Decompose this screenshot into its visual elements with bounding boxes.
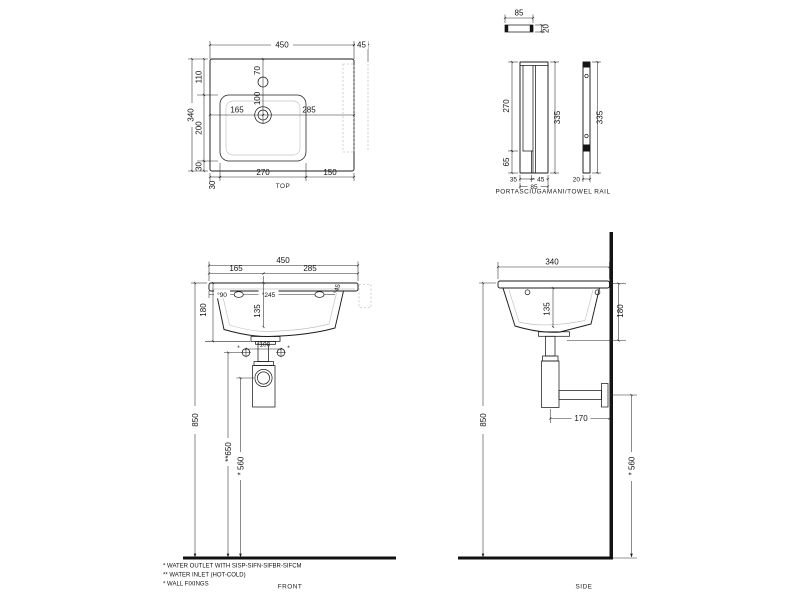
footnote-water-outlet: * WATER OUTLET WITH SISP-SIFN-SIFBR-SIFC…	[163, 564, 302, 570]
towel-rail-hidden-outline	[359, 285, 371, 308]
front-view: * * 450 165 285 °90 °245 °45 180	[183, 256, 396, 591]
tailpipe	[546, 336, 556, 356]
top-view-caption: TOP	[276, 183, 291, 190]
dim-rail-side-height: 335	[596, 110, 605, 124]
dim-front-outlet-height: * 560	[236, 456, 245, 475]
top-view: 450 45 340 110 200 30 30 270 150 165	[187, 40, 369, 190]
side-view: 340 135 180 170 850 * 560 SIDE	[458, 232, 637, 591]
dim-front-width: 450	[276, 256, 290, 265]
dim-top-height: 340	[187, 108, 196, 122]
dim-top-drain-left: 165	[230, 105, 244, 114]
rail-side-view: 335 20	[573, 62, 605, 184]
dim-side-rim-height: 850	[479, 413, 488, 427]
faucet-hole-front	[234, 292, 243, 298]
dim-rail-front-h2: 65	[502, 157, 511, 166]
footnote-water-inlet: ** WATER INLET (HOT-COLD)	[163, 573, 246, 579]
dim-top-h2: 200	[195, 121, 204, 135]
dim-side-bowl-depth: 135	[542, 302, 551, 316]
bottle-trap	[542, 361, 560, 408]
dim-rail-height: 335	[553, 110, 562, 124]
deck-hole-side	[525, 290, 530, 295]
dim-front-rim-height: 850	[191, 413, 200, 427]
rail-hole	[585, 134, 588, 137]
dim-top-h3: 30	[195, 162, 204, 171]
dim-front-hole1: °90	[217, 291, 227, 299]
towel-rail-hidden-outline	[343, 64, 354, 152]
dim-top-shelf: 45	[357, 40, 366, 49]
dim-top-width: 450	[275, 40, 289, 49]
wall-flange	[602, 384, 609, 408]
dim-side-depth: 340	[545, 258, 559, 267]
deck-hole-side	[595, 290, 600, 295]
dim-top-drain-right: 285	[302, 105, 316, 114]
rail-hole	[585, 74, 588, 77]
dim-front-tap-left: 165	[229, 264, 243, 273]
dim-front-inlet-height: **650	[224, 442, 233, 462]
front-view-dimensions: 450 165 285 °90 °245 °45 180 135 *100	[191, 256, 358, 557]
outlet-pipe	[559, 391, 602, 400]
dim-top-faucet-offset: 70	[253, 66, 262, 75]
towel-rail-views: 85 20 270 65 35 45	[495, 9, 610, 196]
dim-front-tap-right: 285	[303, 264, 317, 273]
dim-rail-top-thickness: 20	[542, 24, 551, 33]
side-view-caption: SIDE	[576, 584, 593, 591]
front-view-geometry: * *	[183, 283, 396, 558]
dim-rail-top-width: 85	[515, 9, 524, 18]
dim-side-height: 180	[616, 304, 625, 318]
dim-front-hole3: °45	[332, 283, 342, 295]
dim-top-left-margin: 30	[208, 180, 217, 189]
front-view-caption: FRONT	[278, 584, 303, 591]
rail-front-view: 270 65 35 45 85 335	[502, 62, 562, 191]
dim-rail-front-h1: 270	[502, 99, 511, 113]
dim-side-trap-offset: 170	[574, 414, 588, 423]
technical-drawing-sheet: 450 45 340 110 200 30 30 270 150 165	[0, 0, 800, 600]
footnote-wall-fixings: * WALL FIXINGS	[163, 582, 209, 588]
dim-front-bowl-depth: 135	[253, 304, 262, 318]
dim-top-h1: 110	[195, 70, 204, 83]
top-view-dimensions: 450 45 340 110 200 30 30 270 150 165	[187, 40, 369, 189]
fixing-mark: *	[237, 345, 240, 352]
dim-top-basin-width: 270	[256, 168, 270, 177]
drawing-canvas: 450 45 340 110 200 30 30 270 150 165	[0, 0, 800, 600]
dim-rail-side-thickness: 20	[573, 177, 581, 184]
dim-top-right-margin: 150	[323, 168, 337, 177]
dim-front-fixings: *100	[257, 341, 271, 348]
optional-hole-front	[315, 292, 324, 298]
dim-side-outlet-height: * 560	[627, 456, 636, 475]
rail-top-view: 85 20	[505, 9, 551, 33]
dim-rail-foot-width: 35	[510, 177, 518, 184]
dim-front-height: 180	[199, 303, 208, 317]
rail-caption: PORTASCIUGAMANI/TOWEL RAIL	[495, 189, 610, 196]
fixing-mark: *	[287, 345, 290, 352]
dim-front-hole2: °245	[262, 291, 276, 299]
dim-top-drain-offset: 100	[253, 91, 262, 105]
